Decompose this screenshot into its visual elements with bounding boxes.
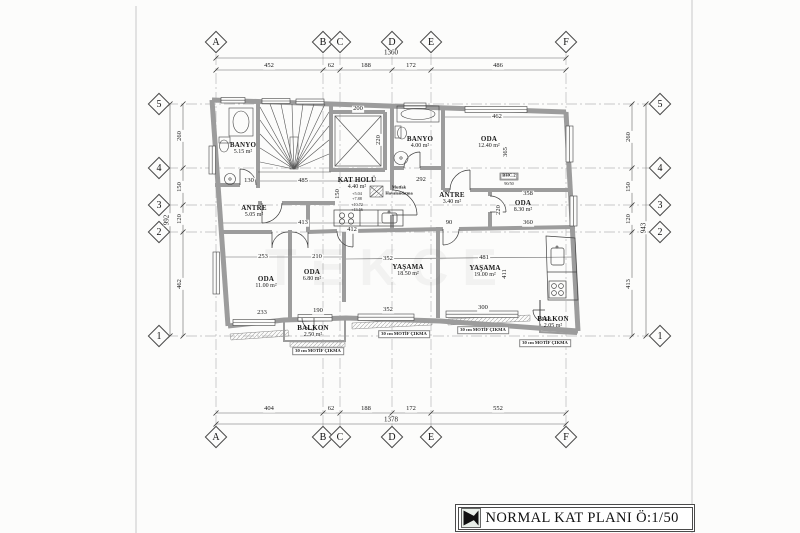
dim-label: 120 — [177, 213, 184, 225]
dim-label: 200 — [352, 106, 364, 113]
room-name: YAŞAMA — [469, 264, 500, 272]
dim-label: 486 — [492, 63, 504, 70]
room-label-kat-holu: KAT HOLÜ4.40 m² — [338, 176, 377, 192]
room-name: ODA — [255, 275, 276, 283]
room-label-banyo-1: BANYO5.15 m² — [230, 141, 256, 157]
bhc-size-label: 90/50 — [504, 182, 514, 186]
room-area: 4.00 m² — [407, 144, 433, 151]
level-value: +13.56 — [351, 207, 363, 212]
dim-label: 411 — [502, 268, 509, 280]
room-area: 11.00 m² — [255, 284, 276, 291]
room-name: BANYO — [407, 135, 433, 143]
stove-icon — [339, 213, 353, 224]
dim-label: 552 — [492, 406, 504, 413]
stove-icon — [549, 281, 566, 298]
bubble-label: E — [428, 37, 434, 48]
dim-label: 412 — [346, 227, 358, 234]
bubble-label: A — [212, 37, 219, 48]
grid-bubble-row-2-right: 2 — [647, 219, 673, 245]
room-name: ODA — [478, 135, 499, 143]
room-name: BALKON — [297, 324, 329, 332]
grid-bubble-row-1-left: 1 — [146, 323, 172, 349]
dim-label: 485 — [297, 178, 309, 185]
bubble-label: B — [320, 432, 327, 443]
dim-label: 452 — [263, 63, 275, 70]
bhc-label: BHC.2 — [500, 173, 517, 180]
room-label-yasama-2: YAŞAMA19.00 m² — [469, 264, 500, 280]
dim-label: 365 — [503, 146, 510, 158]
dim-label: 943 — [641, 222, 648, 235]
room-area: 6.80 m² — [303, 277, 321, 284]
room-area: 18.50 m² — [392, 272, 423, 279]
room-area: 2.05 m² — [537, 324, 569, 331]
dim-label: 1360 — [383, 50, 399, 57]
motif-cikma-label: 30 cm MOTİF ÇIKMA — [292, 347, 344, 355]
bubble-label: 4 — [157, 163, 162, 174]
dim-label: 358 — [522, 191, 534, 198]
bubble-label: 2 — [658, 227, 663, 238]
grid-bubble-col-c-bottom: C — [327, 424, 353, 450]
sink-icon — [394, 152, 408, 165]
dim-label: 190 — [312, 308, 324, 315]
dim-label: 404 — [263, 406, 275, 413]
sink-icon — [225, 174, 236, 185]
dim-label: 233 — [256, 310, 268, 317]
room-label-oda-1240: ODA12.40 m² — [478, 135, 499, 151]
bubble-label: 1 — [658, 331, 663, 342]
grid-bubble-col-e-top: E — [418, 29, 444, 55]
grid-bubble-row-5-right: 5 — [647, 91, 673, 117]
stairs — [258, 104, 331, 172]
room-label-banyo-2: BANYO4.00 m² — [407, 135, 433, 151]
grid-bubble-row-3-right: 3 — [647, 192, 673, 218]
bubble-label: F — [563, 432, 569, 443]
grid-bubble-row-4-left: 4 — [146, 155, 172, 181]
room-area: 2.50 m² — [297, 333, 329, 340]
dim-label: 360 — [522, 220, 534, 227]
room-area: 19.00 m² — [469, 273, 500, 280]
room-name: BALKON — [537, 315, 569, 323]
drawing-title: NORMAL KAT PLANI Ö:1/50 — [486, 510, 679, 527]
room-area: 3.40 m² — [439, 200, 465, 207]
floor-plan-sheet: TEKCE A B C D E F A B C D E F 5 4 3 2 1 … — [0, 0, 800, 533]
room-area: 5.15 m² — [230, 150, 256, 157]
bubble-label: 5 — [658, 99, 663, 110]
grid-bubble-row-4-right: 4 — [647, 155, 673, 181]
room-area: 12.40 m² — [478, 144, 499, 151]
grid-bubble-row-1-right: 1 — [647, 323, 673, 349]
room-area: 5.05 m² — [241, 213, 267, 220]
bathtub-icon — [229, 108, 253, 136]
north-arrow-icon — [461, 508, 481, 528]
grid-bubble-col-e-bottom: E — [418, 424, 444, 450]
toilet-icon — [219, 137, 230, 152]
dim-label: 462 — [491, 114, 503, 121]
dim-label: 130 — [243, 178, 255, 185]
dim-label: 260 — [626, 131, 633, 143]
dim-label: 62 — [327, 406, 336, 413]
grid-bubble-col-f-bottom: F — [553, 424, 579, 450]
dim-label: 172 — [405, 63, 417, 70]
dim-label: 210 — [311, 254, 323, 261]
dim-label: 352 — [382, 256, 394, 263]
toilet-icon — [395, 126, 407, 139]
dim-label: 172 — [405, 406, 417, 413]
room-label-oda-830: ODA8.30 m² — [514, 199, 532, 215]
room-label-yasama-1: YAŞAMA18.50 m² — [392, 263, 423, 279]
room-name: ANTRE — [439, 191, 465, 199]
motif-cikma-label: 30 cm MOTİF ÇIKMA — [519, 339, 571, 347]
room-name: ODA — [514, 199, 532, 207]
dim-label: 352 — [382, 307, 394, 314]
dim-label: 481 — [478, 255, 490, 262]
room-label-oda-680: ODA6.80 m² — [303, 268, 321, 284]
dim-label: 90 — [445, 220, 454, 227]
grid-bubble-col-a-bottom: A — [203, 424, 229, 450]
bubble-label: 5 — [157, 99, 162, 110]
dim-label: 260 — [177, 130, 184, 142]
room-label-antre-1: ANTRE5.05 m² — [241, 204, 267, 220]
motif-cikma-label: 30 cm MOTİF ÇIKMA — [378, 330, 430, 338]
bubble-label: A — [212, 432, 219, 443]
grid-bubble-row-5-left: 5 — [146, 91, 172, 117]
bubble-label: 3 — [658, 200, 663, 211]
room-label-balkon-1: BALKON2.50 m² — [297, 324, 329, 340]
dim-label: 292 — [415, 177, 427, 184]
dim-label: 220 — [376, 134, 383, 146]
bubble-label: 3 — [157, 200, 162, 211]
dim-label: 188 — [360, 406, 372, 413]
motif-cikma-label: 30 cm MOTİF ÇIKMA — [457, 326, 509, 334]
dim-label: 1378 — [383, 417, 399, 424]
grid-bubble-col-f-top: F — [553, 29, 579, 55]
room-label-antre-2: ANTRE3.40 m² — [439, 191, 465, 207]
room-label-balkon-2: BALKON2.05 m² — [537, 315, 569, 331]
sink-icon — [551, 246, 564, 265]
dim-label: 462 — [177, 278, 184, 290]
grid-bubble-col-d-bottom: D — [379, 424, 405, 450]
room-area: 8.30 m² — [514, 208, 532, 215]
sink-icon — [382, 211, 397, 223]
grid-bubble-col-a-top: A — [203, 29, 229, 55]
bubble-label: B — [320, 37, 327, 48]
room-name: KAT HOLÜ — [338, 176, 377, 184]
bubble-label: 1 — [157, 331, 162, 342]
bubble-label: F — [563, 37, 569, 48]
dim-label: 413 — [626, 278, 633, 290]
room-name: YAŞAMA — [392, 263, 423, 271]
room-name: BANYO — [230, 141, 256, 149]
bubble-label: C — [337, 37, 344, 48]
bubble-label: D — [388, 37, 395, 48]
dim-label: 253 — [257, 254, 269, 261]
room-name: ODA — [303, 268, 321, 276]
dim-label: 150 — [177, 181, 184, 193]
vent-label: Mutfak Havalandırma — [385, 185, 412, 196]
dim-label: 62 — [327, 63, 336, 70]
title-block: NORMAL KAT PLANI Ö:1/50 — [455, 504, 695, 532]
dim-label: 300 — [477, 305, 489, 312]
room-label-oda-1100: ODA11.00 m² — [255, 275, 276, 291]
bubble-label: C — [337, 432, 344, 443]
bubble-label: E — [428, 432, 434, 443]
dim-label: 413 — [297, 220, 309, 227]
dim-label: 992 — [164, 214, 171, 227]
grid-bubble-col-c-top: C — [327, 29, 353, 55]
dim-label: 120 — [626, 213, 633, 225]
title-block-inner: NORMAL KAT PLANI Ö:1/50 — [458, 507, 693, 530]
bubble-label: 2 — [157, 227, 162, 238]
dim-label: 220 — [496, 204, 503, 216]
dim-label: 150 — [626, 181, 633, 193]
bubble-label: 4 — [658, 163, 663, 174]
dim-label: 188 — [360, 63, 372, 70]
bubble-label: D — [388, 432, 395, 443]
room-name: ANTRE — [241, 204, 267, 212]
floor-levels: +5.04 +7.88 +10.72 +13.56 — [351, 191, 363, 213]
vent-label-line2: Havalandırma — [385, 190, 412, 196]
